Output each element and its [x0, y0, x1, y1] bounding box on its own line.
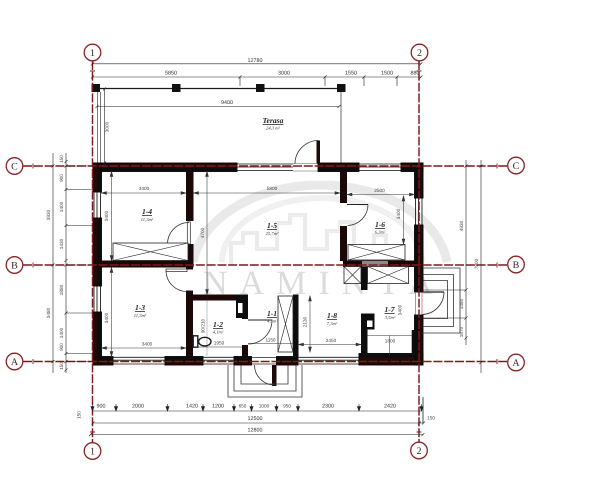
- svg-text:C: C: [11, 162, 18, 173]
- svg-text:900: 900: [59, 343, 64, 351]
- svg-text:900: 900: [59, 174, 64, 182]
- svg-text:9400: 9400: [221, 100, 233, 106]
- svg-text:2: 2: [417, 48, 422, 59]
- svg-text:150: 150: [59, 362, 64, 370]
- svg-text:5800: 5800: [267, 186, 278, 191]
- svg-text:1800: 1800: [385, 339, 396, 344]
- svg-text:3400: 3400: [142, 342, 153, 347]
- svg-text:B: B: [11, 261, 18, 272]
- svg-text:1000: 1000: [259, 404, 270, 409]
- svg-text:4,1m²: 4,1m²: [267, 319, 278, 324]
- svg-text:2420: 2420: [384, 404, 396, 410]
- svg-text:900: 900: [97, 404, 106, 410]
- svg-text:1430: 1430: [59, 238, 64, 249]
- svg-text:1-7: 1-7: [384, 305, 395, 314]
- svg-text:1-3: 1-3: [135, 303, 145, 312]
- svg-text:1870: 1870: [459, 326, 464, 337]
- svg-text:4,1m²: 4,1m²: [213, 330, 224, 335]
- svg-text:950: 950: [283, 404, 291, 409]
- svg-text:150: 150: [427, 416, 435, 421]
- svg-text:3,5m²: 3,5m²: [385, 315, 396, 320]
- svg-text:1-8: 1-8: [327, 311, 337, 320]
- svg-text:3480: 3480: [46, 307, 51, 318]
- svg-text:Terasa: Terasa: [263, 116, 284, 125]
- svg-text:1200: 1200: [212, 404, 224, 410]
- svg-text:1950: 1950: [214, 341, 225, 346]
- svg-text:12780: 12780: [248, 58, 263, 64]
- svg-text:1-6: 1-6: [375, 220, 385, 229]
- svg-text:3400: 3400: [139, 186, 150, 191]
- svg-text:1-5: 1-5: [267, 221, 277, 230]
- svg-text:1-1: 1-1: [267, 309, 277, 318]
- svg-text:1550: 1550: [345, 71, 357, 77]
- svg-text:1150: 1150: [265, 338, 275, 343]
- svg-text:3400: 3400: [398, 304, 403, 315]
- svg-text:7800: 7800: [474, 258, 479, 269]
- svg-text:24,3 m²: 24,3 m²: [266, 126, 281, 131]
- svg-text:2450: 2450: [326, 338, 337, 343]
- svg-text:1-2: 1-2: [213, 320, 223, 329]
- svg-text:A: A: [512, 358, 520, 369]
- svg-text:3000: 3000: [278, 71, 290, 77]
- svg-text:4700: 4700: [200, 227, 205, 238]
- svg-text:1880: 1880: [59, 284, 64, 295]
- svg-text:5850: 5850: [165, 71, 177, 77]
- svg-text:90/210: 90/210: [201, 318, 206, 333]
- svg-text:2000: 2000: [132, 404, 144, 410]
- svg-text:3000: 3000: [105, 121, 110, 132]
- svg-text:650: 650: [239, 404, 247, 409]
- svg-text:1500: 1500: [381, 71, 393, 77]
- svg-text:25,7m²: 25,7m²: [266, 231, 279, 236]
- svg-text:2130: 2130: [303, 316, 308, 327]
- svg-text:150: 150: [77, 411, 82, 419]
- svg-text:4930: 4930: [459, 220, 464, 231]
- svg-text:3930: 3930: [46, 209, 51, 220]
- svg-text:3400: 3400: [104, 210, 109, 221]
- svg-text:C: C: [513, 161, 520, 172]
- svg-text:2: 2: [417, 446, 422, 457]
- svg-text:3400: 3400: [104, 312, 109, 323]
- svg-text:11,3m²: 11,3m²: [141, 217, 154, 222]
- svg-text:880: 880: [411, 71, 420, 77]
- svg-text:7,3m²: 7,3m²: [327, 321, 338, 326]
- svg-text:1400: 1400: [59, 201, 64, 212]
- svg-text:1480: 1480: [459, 298, 464, 309]
- svg-text:3400: 3400: [396, 208, 401, 219]
- svg-text:1400: 1400: [59, 327, 64, 338]
- svg-text:150: 150: [59, 155, 64, 163]
- svg-text:2500: 2500: [374, 188, 385, 193]
- svg-text:1: 1: [90, 447, 95, 458]
- svg-text:B: B: [513, 260, 520, 271]
- svg-text:6,3m²: 6,3m²: [375, 230, 386, 235]
- svg-text:1420: 1420: [186, 404, 198, 410]
- svg-text:2300: 2300: [322, 404, 334, 410]
- svg-text:11,3m²: 11,3m²: [134, 313, 147, 318]
- svg-text:12800: 12800: [248, 428, 263, 434]
- svg-text:1-4: 1-4: [142, 207, 152, 216]
- svg-text:A: A: [11, 357, 19, 368]
- svg-text:12500: 12500: [248, 416, 263, 422]
- svg-text:1: 1: [90, 48, 95, 59]
